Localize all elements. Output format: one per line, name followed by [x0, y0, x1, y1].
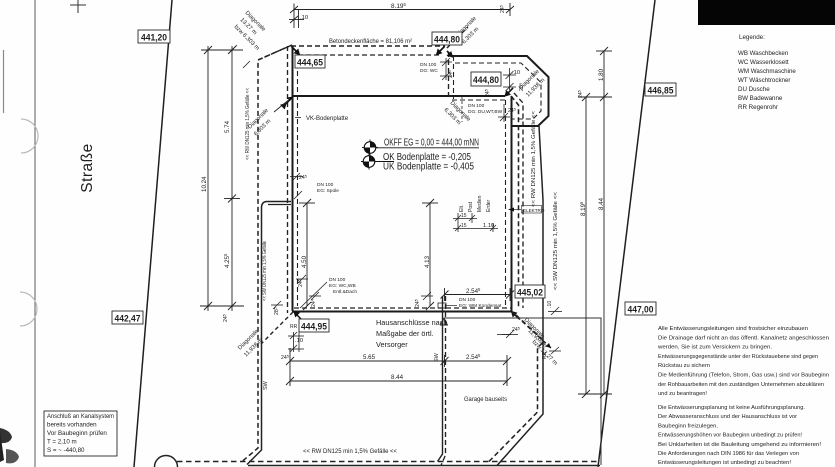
svg-text:5.74: 5.74	[224, 120, 231, 133]
svg-text:EG: WC,WB: EG: WC,WB	[329, 283, 356, 289]
svg-text:Post: Post	[468, 201, 474, 212]
svg-text:UK Bodenplatte = -0,405: UK Bodenplatte = -0,405	[383, 162, 474, 173]
svg-text:10.24: 10.24	[201, 176, 208, 192]
svg-text:444,65: 444,65	[297, 58, 324, 69]
svg-text:bereits vorhanden: bereits vorhanden	[47, 422, 97, 429]
svg-text:Rückstau zu sichern: Rückstau zu sichern	[658, 363, 710, 369]
svg-text:15: 15	[461, 223, 467, 229]
svg-text:Hausanschlüsse nach: Hausanschlüsse nach	[376, 318, 447, 327]
svg-text:1.10: 1.10	[483, 223, 494, 229]
svg-text:Der Abwasseranschluss und der: Der Abwasseranschluss und der Hausanschl…	[658, 414, 797, 420]
svg-text:446,85: 446,85	[648, 86, 675, 97]
svg-text:VK-Bodenplatte: VK-Bodenplatte	[306, 116, 349, 122]
svg-text:447,00: 447,00	[628, 305, 654, 316]
svg-text:<< RW DN125 min 1,5% Gefälle <: << RW DN125 min 1,5% Gefälle <<	[303, 448, 397, 455]
svg-text:15: 15	[461, 213, 467, 219]
svg-text:der Rohbauarbeiten mit den zus: der Rohbauarbeiten mit den zuständigen U…	[658, 382, 824, 388]
svg-text:Die Entwässerungsplanung ist k: Die Entwässerungsplanung ist keine Ausfü…	[658, 405, 805, 411]
svg-text:444,80: 444,80	[434, 35, 460, 46]
svg-text:RR Regenrohr: RR Regenrohr	[738, 104, 778, 111]
svg-text:EG: WM Kondensat: EG: WM Kondensat	[459, 303, 502, 309]
svg-text:Die Medienführung (Telefon, St: Die Medienführung (Telefon, Strom, Gas u…	[658, 373, 829, 379]
svg-text:4.13: 4.13	[424, 255, 431, 268]
svg-text:Die Drainage darf nicht an das: Die Drainage darf nicht an das öffentl. …	[658, 335, 829, 341]
svg-text:4.50: 4.50	[301, 255, 308, 268]
svg-text:Legende:: Legende:	[739, 34, 765, 41]
svg-text:Erder: Erder	[486, 199, 492, 212]
svg-text:DN 100: DN 100	[329, 277, 346, 283]
svg-text:.10: .10	[512, 70, 520, 76]
svg-text:.10: .10	[547, 301, 553, 308]
svg-text:Straße: Straße	[79, 143, 96, 193]
svg-text:5.65: 5.65	[363, 354, 376, 361]
svg-text:442,47: 442,47	[115, 314, 141, 325]
svg-text:1.80: 1.80	[598, 68, 605, 81]
svg-text:DN 100: DN 100	[420, 62, 437, 68]
svg-text:DG: WC: DG: WC	[420, 68, 438, 74]
svg-text:OKFF EG = 0,00 = 444,00 mNN: OKFF EG = 0,00 = 444,00 mNN	[384, 138, 479, 149]
svg-text:Vor Baubeginn prüfen: Vor Baubeginn prüfen	[47, 430, 107, 437]
svg-text:SW: SW	[434, 352, 440, 362]
svg-text:.10: .10	[295, 338, 303, 344]
svg-text:RR: RR	[290, 324, 298, 330]
svg-text:Elt.: Elt.	[459, 205, 465, 212]
svg-text:8.44: 8.44	[598, 197, 605, 210]
svg-text:WT Wäschtrockner: WT Wäschtrockner	[738, 77, 791, 84]
svg-text:T = 2,10 m: T = 2,10 m	[47, 439, 77, 446]
svg-text:EG: Spüle: EG: Spüle	[317, 188, 339, 194]
svg-text:SW: SW	[263, 380, 269, 390]
svg-text:DG: DU,WT,BW: DG: DU,WT,BW	[468, 109, 503, 115]
svg-text:Garage bauseits: Garage bauseits	[464, 396, 508, 403]
svg-text:S = ~ -440,80: S = ~ -440,80	[47, 447, 85, 454]
svg-text:444,95: 444,95	[301, 322, 328, 333]
svg-text:Betondeckenfläche = 81,106 m²: Betondeckenfläche = 81,106 m²	[329, 38, 412, 45]
svg-text:WC Wasserklosett: WC Wasserklosett	[738, 59, 789, 66]
svg-text:445,02: 445,02	[517, 288, 543, 299]
svg-text:Medien: Medien	[477, 195, 483, 212]
svg-text:DN 100: DN 100	[468, 103, 485, 109]
svg-text:und zu beantragen!: und zu beantragen!	[658, 391, 707, 397]
svg-text:<< SW DN125 min 1,5% Gefälle <: << SW DN125 min 1,5% Gefälle <<	[553, 192, 559, 290]
svg-text:Versorger: Versorger	[376, 340, 408, 349]
svg-text:.10: .10	[300, 15, 308, 21]
svg-text:DU Dusche: DU Dusche	[738, 86, 770, 93]
svg-text:Entl.&Dach: Entl.&Dach	[333, 289, 357, 295]
svg-text:441,20: 441,20	[141, 33, 167, 44]
svg-text:8.44: 8.44	[391, 374, 404, 381]
svg-text:<< RW DN125 min 1,5% Gefälle <: << RW DN125 min 1,5% Gefälle <<	[245, 88, 251, 160]
svg-text:<< RW DN125 min 1,5% Gefälle <: << RW DN125 min 1,5% Gefälle <<	[531, 111, 537, 207]
svg-text:Baubeginn freizulegen.: Baubeginn freizulegen.	[658, 423, 718, 429]
svg-text:Maßgabe der örtl.: Maßgabe der örtl.	[376, 329, 434, 338]
svg-text:Bei Unklarheiten ist die Baule: Bei Unklarheiten ist die Bauleitung umge…	[658, 442, 821, 448]
svg-text:WB Waschbecken: WB Waschbecken	[738, 50, 789, 57]
svg-text:Entwässerungshöhen vor Baubegi: Entwässerungshöhen vor Baubeginn unbedin…	[658, 433, 802, 439]
svg-text:WM Waschmaschine: WM Waschmaschine	[738, 68, 796, 75]
svg-text:<< SW DN125 min 1,5% Gefälle: << SW DN125 min 1,5% Gefälle	[262, 241, 268, 301]
svg-text:444,80: 444,80	[473, 75, 499, 86]
svg-text:DN 100: DN 100	[459, 297, 476, 303]
svg-text:Entwässerungsgegenstände unter: Entwässerungsgegenstände unter der Rücks…	[658, 354, 818, 360]
svg-text:werden. Sie ist zum Versickern: werden. Sie ist zum Versickern zu bringe…	[657, 345, 772, 351]
svg-text:Anschluß an Kanalsystem: Anschluß an Kanalsystem	[47, 413, 114, 420]
svg-text:BW Badewanne: BW Badewanne	[738, 95, 783, 102]
svg-text:Entwässerungsleitungen ist unb: Entwässerungsleitungen ist unbedingt zu …	[658, 460, 791, 466]
svg-text:DN 100: DN 100	[317, 182, 334, 188]
svg-text:Die Anforderungen nach DIN 198: Die Anforderungen nach DIN 1986 für das …	[658, 451, 799, 457]
svg-text:Alle Entwässerungsleitungen si: Alle Entwässerungsleitungen sind frostsi…	[658, 326, 808, 332]
